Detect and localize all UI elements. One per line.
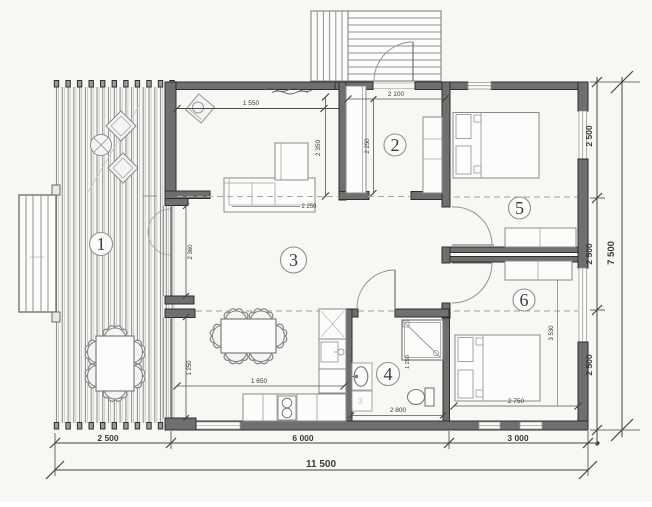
- svg-text:3: 3: [289, 250, 298, 270]
- svg-text:2 100: 2 100: [388, 91, 405, 98]
- svg-text:2 250: 2 250: [301, 204, 317, 210]
- svg-text:6 000: 6 000: [292, 433, 314, 443]
- svg-text:2 500: 2 500: [584, 354, 594, 376]
- svg-text:2 500: 2 500: [584, 243, 594, 265]
- svg-text:1 550: 1 550: [243, 100, 260, 107]
- svg-text:2 350: 2 350: [315, 139, 322, 156]
- svg-text:4: 4: [384, 364, 393, 384]
- svg-text:2 800: 2 800: [390, 407, 407, 414]
- svg-text:1 250: 1 250: [405, 355, 411, 369]
- svg-text:2: 2: [391, 135, 400, 155]
- svg-text:1 250: 1 250: [187, 360, 193, 376]
- svg-text:1: 1: [97, 234, 106, 254]
- svg-text:3 530: 3 530: [549, 325, 555, 341]
- svg-text:2 360: 2 360: [188, 244, 194, 260]
- svg-text:11 500: 11 500: [306, 459, 336, 470]
- svg-text:3 000: 3 000: [507, 433, 529, 443]
- svg-text:1 650: 1 650: [251, 378, 268, 385]
- svg-text:2 500: 2 500: [97, 433, 119, 443]
- svg-text:2 500: 2 500: [584, 125, 594, 147]
- svg-text:7 500: 7 500: [606, 241, 617, 265]
- svg-text:6: 6: [520, 290, 529, 310]
- svg-text:2 750: 2 750: [508, 398, 525, 405]
- svg-text:2 250: 2 250: [365, 138, 371, 154]
- svg-text:3: 3: [358, 397, 363, 406]
- svg-text:5: 5: [515, 198, 524, 218]
